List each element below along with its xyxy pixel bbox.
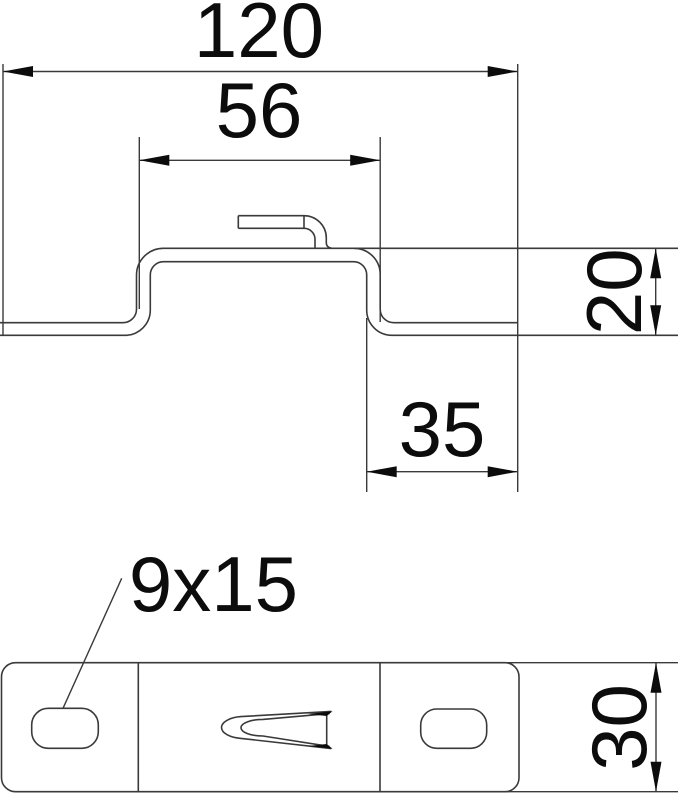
- dim-profile-height: 20: [570, 248, 661, 335]
- dim-label-20: 20: [570, 248, 658, 335]
- technical-drawing-canvas: 120 56 35: [0, 0, 678, 794]
- dim-label-56: 56: [216, 66, 303, 154]
- callout-label-9x15: 9x15: [129, 540, 298, 628]
- dim-label-30: 30: [575, 684, 663, 771]
- dim-label-35: 35: [399, 385, 486, 473]
- drawing-background: [0, 0, 678, 794]
- dim-label-120: 120: [194, 0, 324, 74]
